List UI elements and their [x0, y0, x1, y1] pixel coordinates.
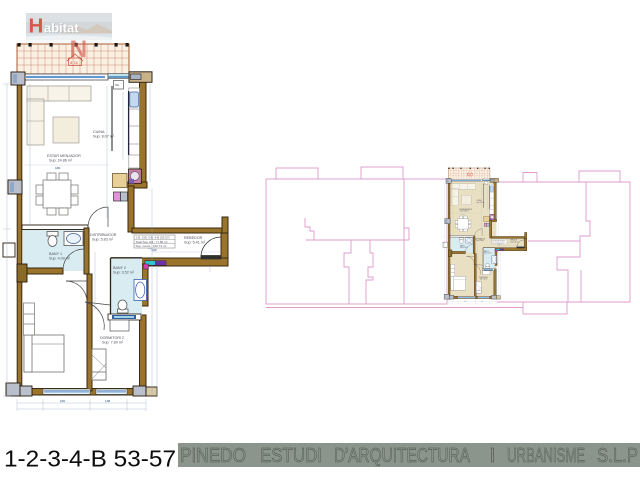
- svg-text:S.L.P: S.L.P: [597, 444, 638, 467]
- svg-text:URBANISME: URBANISME: [507, 444, 585, 467]
- svg-text:abitat: abitat: [44, 21, 79, 36]
- svg-text:N: N: [70, 36, 88, 63]
- svg-text:PINEDO: PINEDO: [180, 444, 246, 467]
- svg-text:D'ARQUITECTURA: D'ARQUITECTURA: [334, 444, 470, 467]
- svg-text:H: H: [29, 15, 44, 38]
- svg-text:I: I: [489, 444, 496, 467]
- svg-text:1-2-3-4-B 53-57: 1-2-3-4-B 53-57: [4, 446, 176, 472]
- svg-text:ESTUDI: ESTUDI: [260, 444, 322, 467]
